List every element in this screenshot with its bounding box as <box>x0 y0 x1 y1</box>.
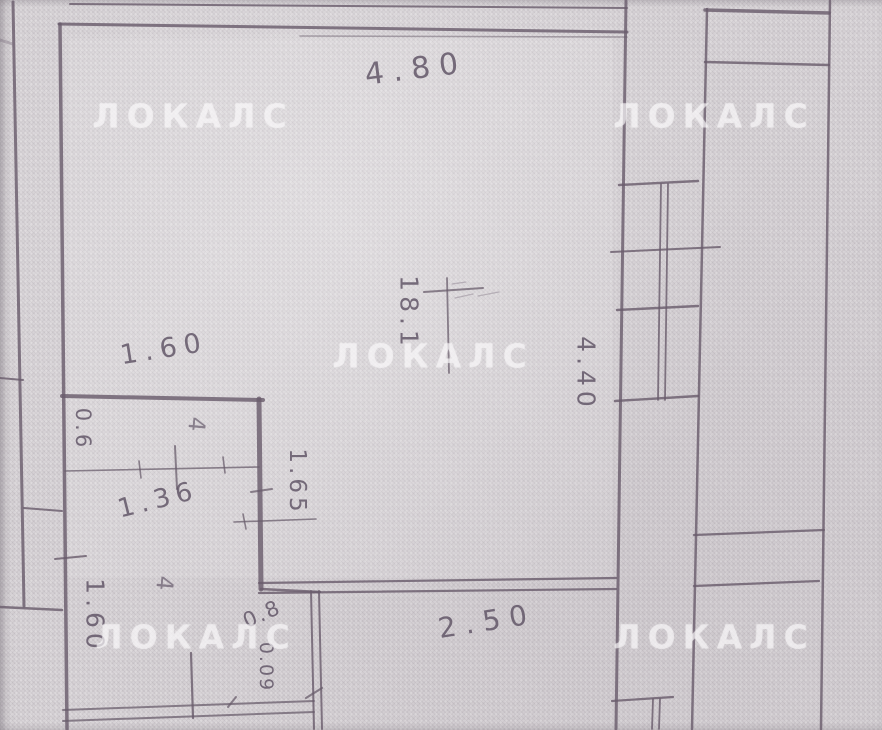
watermark-text: ЛОКАЛС <box>95 618 297 657</box>
plan-mark-a: 4 <box>182 416 209 433</box>
dimension-label-wall-side: 1.65 <box>284 448 310 515</box>
dimension-label-closet-depth: 0.6 <box>71 408 95 450</box>
plan-mark-b: 4 <box>150 575 177 592</box>
dimension-label-room-height: 4.40 <box>572 336 601 412</box>
watermark-text: ЛОКАЛС <box>332 337 534 376</box>
watermark-text: ЛОКАЛС <box>613 618 815 657</box>
floorplan-scan: 4.80 1.60 18.1 4.40 1.60 0.6 1.36 1.65 2… <box>0 0 882 730</box>
watermark-text: ЛОКАЛС <box>613 97 815 136</box>
watermark-text: ЛОКАЛС <box>92 97 294 136</box>
